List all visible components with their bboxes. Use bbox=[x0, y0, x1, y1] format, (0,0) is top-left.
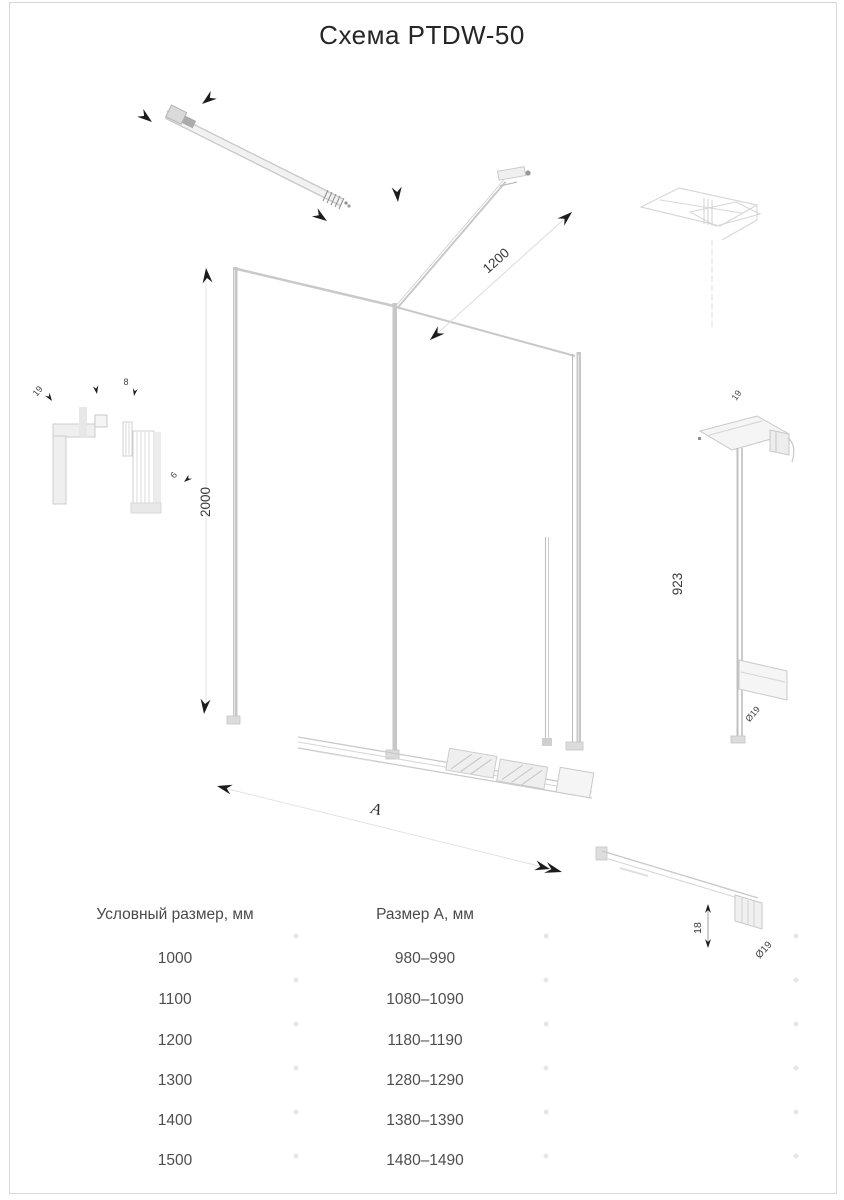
nominal-size-value: 1100 bbox=[60, 991, 290, 1009]
dim-label-d19: Ø19 bbox=[754, 939, 775, 961]
wall-profile-rib bbox=[79, 407, 87, 437]
table-row: 1300 1280–1290 bbox=[60, 1072, 540, 1090]
profile-band bbox=[154, 432, 161, 508]
detail-label-8: 8 bbox=[123, 377, 128, 387]
rail-end-cap bbox=[556, 767, 594, 797]
schematic-page: Схема PTDW-50 bbox=[0, 0, 844, 1200]
bracket-side-box bbox=[770, 430, 789, 455]
dimension-arrow bbox=[216, 781, 233, 794]
nominal-size-value: 1300 bbox=[60, 1072, 290, 1090]
profile-bar bbox=[741, 448, 743, 740]
door-handle-foot bbox=[542, 738, 552, 746]
strut-tube bbox=[397, 181, 505, 307]
leader-arrow bbox=[137, 109, 155, 126]
dim-label-2000: 2000 bbox=[198, 487, 213, 517]
support-bar-end-knob bbox=[344, 201, 347, 204]
leader-arrow bbox=[544, 862, 563, 877]
leader-dot bbox=[698, 437, 701, 440]
tiny-leader-arrow bbox=[45, 393, 54, 403]
bracket-plate2 bbox=[690, 202, 760, 226]
frame bbox=[227, 267, 594, 798]
left-stile-foot bbox=[227, 716, 240, 724]
header-nominal-size: Условный размер, мм bbox=[60, 906, 290, 924]
detail-label-top: 19 bbox=[730, 388, 744, 402]
wall-profile-slot bbox=[95, 415, 107, 427]
bottom-rail bbox=[298, 737, 594, 798]
leader-arrow bbox=[392, 187, 403, 203]
table-row: 1200 1180–1190 bbox=[60, 1032, 540, 1050]
nominal-size-value: 1500 bbox=[60, 1152, 290, 1170]
dimension-line bbox=[220, 787, 547, 868]
tiny-leader-arrow bbox=[182, 475, 192, 485]
bracket-plate bbox=[641, 188, 757, 226]
wall-profile-section bbox=[53, 436, 66, 504]
dimension-arrow bbox=[199, 699, 211, 715]
profile-foot bbox=[131, 503, 161, 513]
dim-label-923: 923 bbox=[670, 573, 685, 596]
nominal-size-value: 1400 bbox=[60, 1112, 290, 1130]
wall-profile-section bbox=[53, 424, 95, 437]
size-a-value: 1080–1090 bbox=[310, 991, 540, 1009]
tiny-leader-arrow bbox=[132, 388, 138, 396]
width-dimension: A bbox=[216, 781, 551, 874]
strut-connector-knob bbox=[525, 170, 530, 175]
dim-label-A: A bbox=[368, 800, 383, 819]
left-profile-detail: 19 8 6 bbox=[31, 377, 192, 513]
table-header: Условный размер, мм Размер А, мм bbox=[60, 906, 540, 924]
glass-section bbox=[133, 431, 154, 505]
strut-dimension: 1200 bbox=[427, 208, 576, 343]
size-a-value: 1480–1490 bbox=[310, 1152, 540, 1170]
profile-bottom-bracket bbox=[739, 660, 787, 700]
nominal-size-value: 1000 bbox=[60, 950, 290, 968]
dim-label-18: 18 bbox=[692, 922, 704, 934]
profile-foot bbox=[731, 736, 745, 743]
door-top-rail bbox=[396, 307, 575, 356]
header-size-a: Размер А, мм bbox=[310, 906, 540, 924]
leader-arrow bbox=[199, 91, 217, 108]
wall-bracket-detail bbox=[641, 188, 760, 330]
table-row: 1400 1380–1390 bbox=[60, 1112, 540, 1130]
top-rail bbox=[237, 269, 394, 306]
detail-label-19: 19 bbox=[31, 384, 45, 398]
door-stile-foot bbox=[566, 742, 583, 750]
dimension-line bbox=[430, 212, 572, 340]
support-bar-edge bbox=[165, 118, 341, 206]
profile-bar bbox=[737, 448, 739, 740]
support-bar-detail bbox=[137, 91, 403, 225]
tiny-leader-arrow bbox=[93, 385, 100, 394]
right-profile-detail: 923 19 Ø19 bbox=[670, 388, 794, 743]
dim-label-1200: 1200 bbox=[480, 245, 512, 276]
bracket-hatch bbox=[704, 198, 712, 226]
detail-label-6: 6 bbox=[168, 470, 179, 480]
strut-wall-connector bbox=[498, 167, 526, 181]
schematic-drawing: 1200 2000 A bbox=[0, 0, 844, 1200]
strut bbox=[397, 167, 531, 307]
left-stile bbox=[233, 267, 238, 722]
size-a-value: 980–990 bbox=[310, 950, 540, 968]
nominal-size-value: 1200 bbox=[60, 1032, 290, 1050]
bar-edge bbox=[602, 851, 758, 898]
leader-arrow bbox=[312, 208, 330, 225]
table-row: 1100 1080–1090 bbox=[60, 991, 540, 1009]
size-a-value: 1280–1290 bbox=[310, 1072, 540, 1090]
table-row: 1000 980–990 bbox=[60, 950, 540, 968]
bracket-line bbox=[660, 200, 742, 213]
center-post bbox=[393, 303, 398, 757]
support-bar-end-knob bbox=[347, 204, 350, 207]
detail-label-bottom: Ø19 bbox=[743, 704, 762, 723]
table-row: 1500 1480–1490 bbox=[60, 1152, 540, 1170]
size-a-value: 1380–1390 bbox=[310, 1112, 540, 1130]
dimension-arrow bbox=[201, 267, 213, 283]
glass-section-small bbox=[123, 422, 132, 456]
bottom-rail-detail: 18 Ø19 bbox=[544, 847, 775, 961]
size-a-value: 1180–1190 bbox=[310, 1032, 540, 1050]
height-dimension: 2000 bbox=[198, 267, 213, 714]
